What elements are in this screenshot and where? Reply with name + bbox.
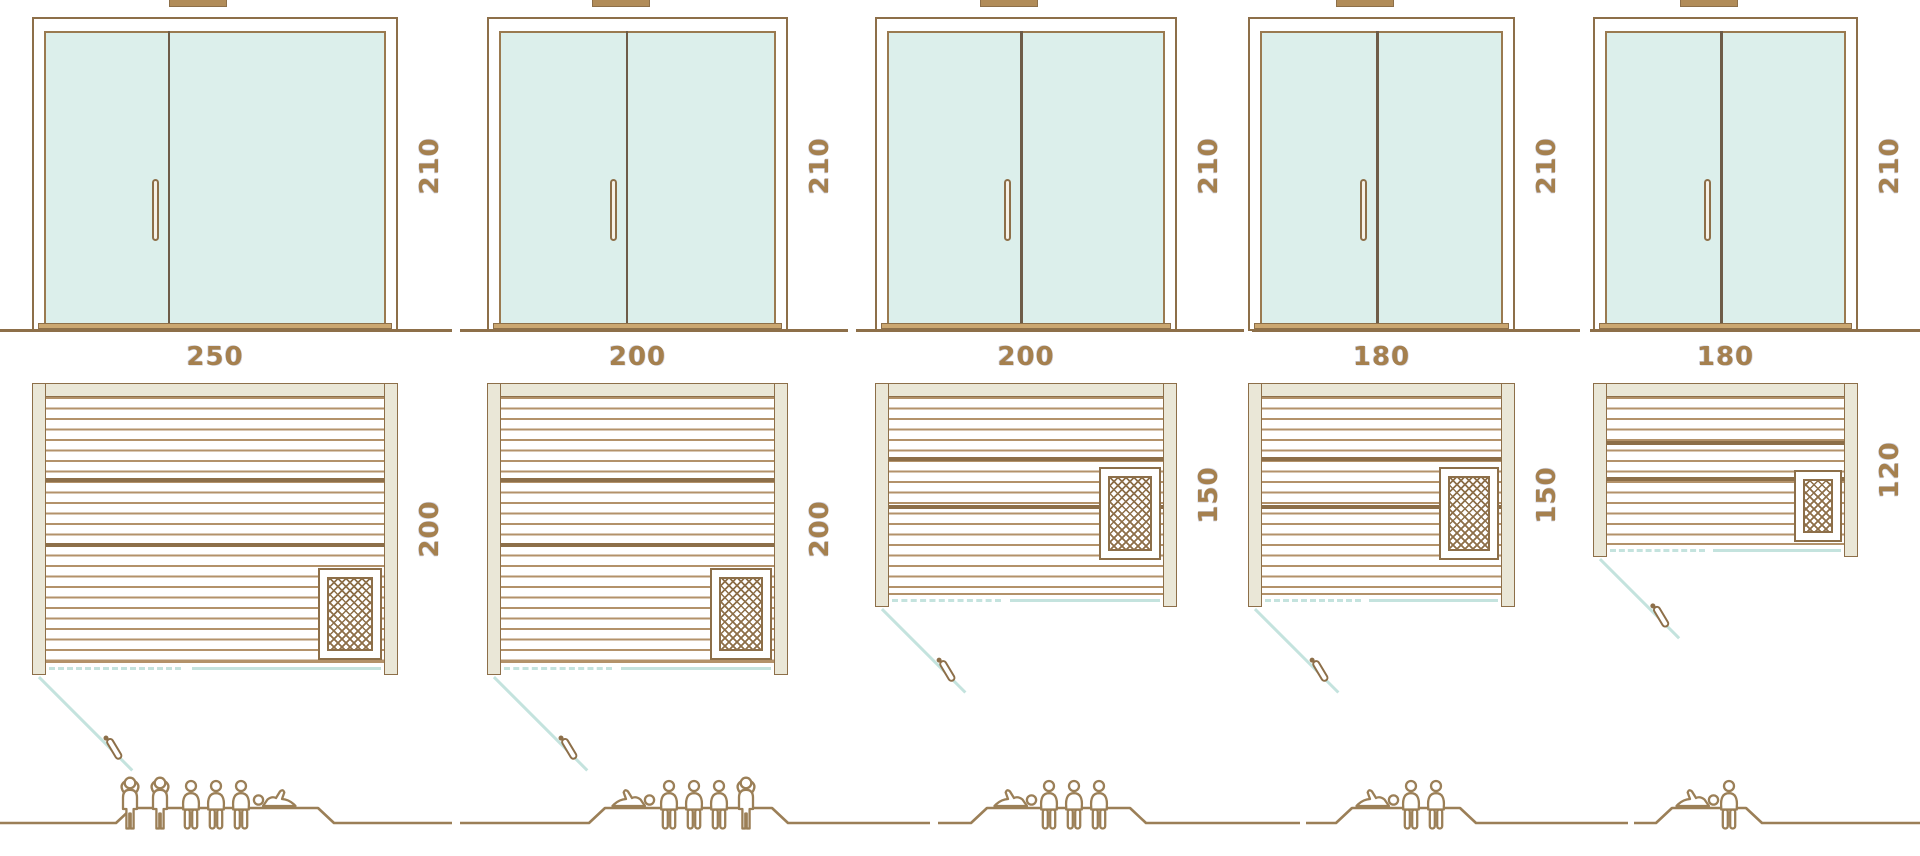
door-opening-dashed-line — [1610, 549, 1705, 552]
heater-stones — [1108, 476, 1152, 551]
sauna-unit-2: 210 200 200 — [487, 0, 788, 856]
back-wall — [1593, 383, 1858, 397]
back-wall — [487, 383, 788, 397]
front-elevation — [487, 17, 788, 331]
door-swing-line — [38, 676, 133, 771]
glass-front-line — [1010, 599, 1160, 602]
person-sitting-icon — [183, 781, 199, 829]
heater-icon — [318, 568, 382, 660]
heater-icon — [1099, 467, 1161, 560]
floor-plan — [1248, 383, 1515, 607]
sauna-unit-3: 210 200 150 — [875, 0, 1177, 856]
ground-line — [856, 329, 1244, 332]
depth-dimension: 120 — [1876, 430, 1904, 510]
chimney-vent — [592, 0, 650, 7]
open-door-handle-icon — [938, 659, 957, 684]
capacity-figures-5-persons — [460, 760, 930, 856]
person-sitting-icon — [1066, 781, 1082, 829]
glass-front-line — [1713, 549, 1841, 552]
door-handle-icon — [152, 179, 159, 241]
door-handle-icon — [1704, 179, 1711, 241]
depth-dimension: 200 — [416, 489, 444, 569]
person-sitting-icon — [1403, 781, 1419, 829]
door-opening-dashed-line — [504, 667, 612, 670]
sauna-unit-1: 210 250 200 — [32, 0, 398, 856]
sauna-size-comparison-diagram: 210 250 200 210 200 — [0, 0, 1920, 856]
open-door-handle-icon — [1651, 604, 1670, 629]
door-handle-icon — [1360, 179, 1367, 241]
person-lying-icon — [995, 790, 1037, 806]
door-opening-dashed-line — [892, 599, 1001, 602]
back-wall — [32, 383, 398, 397]
floor-plan — [1593, 383, 1858, 557]
glass-front-line — [621, 667, 771, 670]
chimney-vent — [980, 0, 1038, 7]
door-swing-line — [493, 676, 588, 771]
ground-line — [1252, 329, 1580, 332]
door-swing-line — [1254, 608, 1339, 693]
glass-front-line — [1369, 599, 1498, 602]
glass-door-panels — [499, 31, 776, 326]
door-divider — [168, 31, 171, 325]
person-sitting-icon — [233, 781, 249, 829]
ground-line — [1590, 329, 1920, 332]
width-dimension: 180 — [1593, 342, 1858, 372]
door-divider — [1020, 31, 1023, 325]
right-wall-post — [1501, 383, 1515, 607]
door-opening-dashed-line — [49, 667, 181, 670]
open-door-handle-icon — [105, 736, 124, 761]
heater-icon — [1794, 470, 1842, 542]
height-dimension: 210 — [1195, 126, 1223, 206]
front-elevation — [1248, 17, 1515, 331]
right-wall-post — [1844, 383, 1858, 557]
glass-door-panels — [887, 31, 1165, 326]
sauna-unit-4: 210 180 150 — [1248, 0, 1515, 856]
heater-stones — [327, 577, 373, 651]
glass-door-panels — [44, 31, 386, 326]
person-sitting-icon — [686, 781, 702, 829]
person-standing-icon — [122, 778, 139, 829]
capacity-figures-2-persons — [1634, 760, 1920, 856]
heater-stones — [1803, 479, 1833, 533]
chimney-vent — [1680, 0, 1738, 7]
left-wall-post — [1248, 383, 1262, 607]
left-wall-post — [32, 383, 46, 675]
person-lying-icon — [1357, 790, 1399, 806]
door-handle-icon — [610, 179, 617, 241]
floor-plan — [875, 383, 1177, 607]
width-dimension: 250 — [32, 342, 398, 372]
left-wall-post — [1593, 383, 1607, 557]
person-lying-icon — [613, 790, 655, 806]
door-divider — [1376, 31, 1379, 325]
back-wall — [1248, 383, 1515, 397]
glass-front-line — [192, 667, 381, 670]
floor-plan — [487, 383, 788, 675]
heater-stones — [719, 577, 763, 651]
depth-dimension: 150 — [1195, 455, 1223, 535]
capacity-figures-6-persons — [0, 760, 452, 856]
front-elevation — [1593, 17, 1858, 331]
door-opening-dashed-line — [1265, 599, 1361, 602]
left-wall-post — [875, 383, 889, 607]
door-swing-line — [881, 608, 966, 693]
person-standing-icon — [152, 778, 169, 829]
person-sitting-icon — [208, 781, 224, 829]
depth-dimension: 200 — [806, 489, 834, 569]
open-door-handle-icon — [1311, 659, 1330, 684]
door-handle-icon — [1004, 179, 1011, 241]
height-dimension: 210 — [1876, 126, 1904, 206]
person-sitting-icon — [1428, 781, 1444, 829]
back-wall — [875, 383, 1177, 397]
chimney-vent — [1336, 0, 1394, 7]
door-divider — [626, 31, 629, 325]
person-sitting-icon — [711, 781, 727, 829]
right-wall-post — [774, 383, 788, 675]
person-lying-icon — [254, 790, 296, 806]
person-standing-icon — [738, 778, 755, 829]
person-sitting-icon — [1091, 781, 1107, 829]
capacity-figures-4-persons — [938, 760, 1300, 856]
person-sitting-icon — [661, 781, 677, 829]
depth-dimension: 150 — [1533, 455, 1561, 535]
person-sitting-icon — [1721, 781, 1737, 829]
ground-line — [460, 329, 848, 332]
glass-door-panels — [1260, 31, 1503, 326]
height-dimension: 210 — [416, 126, 444, 206]
floor-plan — [32, 383, 398, 675]
width-dimension: 200 — [487, 342, 788, 372]
left-wall-post — [487, 383, 501, 675]
width-dimension: 180 — [1248, 342, 1515, 372]
person-sitting-icon — [1041, 781, 1057, 829]
heater-icon — [1439, 467, 1499, 560]
front-elevation — [32, 17, 398, 331]
width-dimension: 200 — [875, 342, 1177, 372]
heater-stones — [1448, 476, 1490, 551]
heater-icon — [710, 568, 772, 660]
height-dimension: 210 — [1533, 126, 1561, 206]
ground-line — [0, 329, 452, 332]
open-door-handle-icon — [560, 736, 579, 761]
capacity-figures-3-persons — [1306, 760, 1628, 856]
right-wall-post — [1163, 383, 1177, 607]
sauna-unit-5: 210 180 120 — [1593, 0, 1858, 856]
height-dimension: 210 — [806, 126, 834, 206]
door-swing-line — [1599, 558, 1680, 639]
person-lying-icon — [1677, 790, 1719, 806]
front-elevation — [875, 17, 1177, 331]
chimney-vent — [169, 0, 227, 7]
right-wall-post — [384, 383, 398, 675]
glass-door-panels — [1605, 31, 1846, 326]
door-divider — [1720, 31, 1723, 325]
